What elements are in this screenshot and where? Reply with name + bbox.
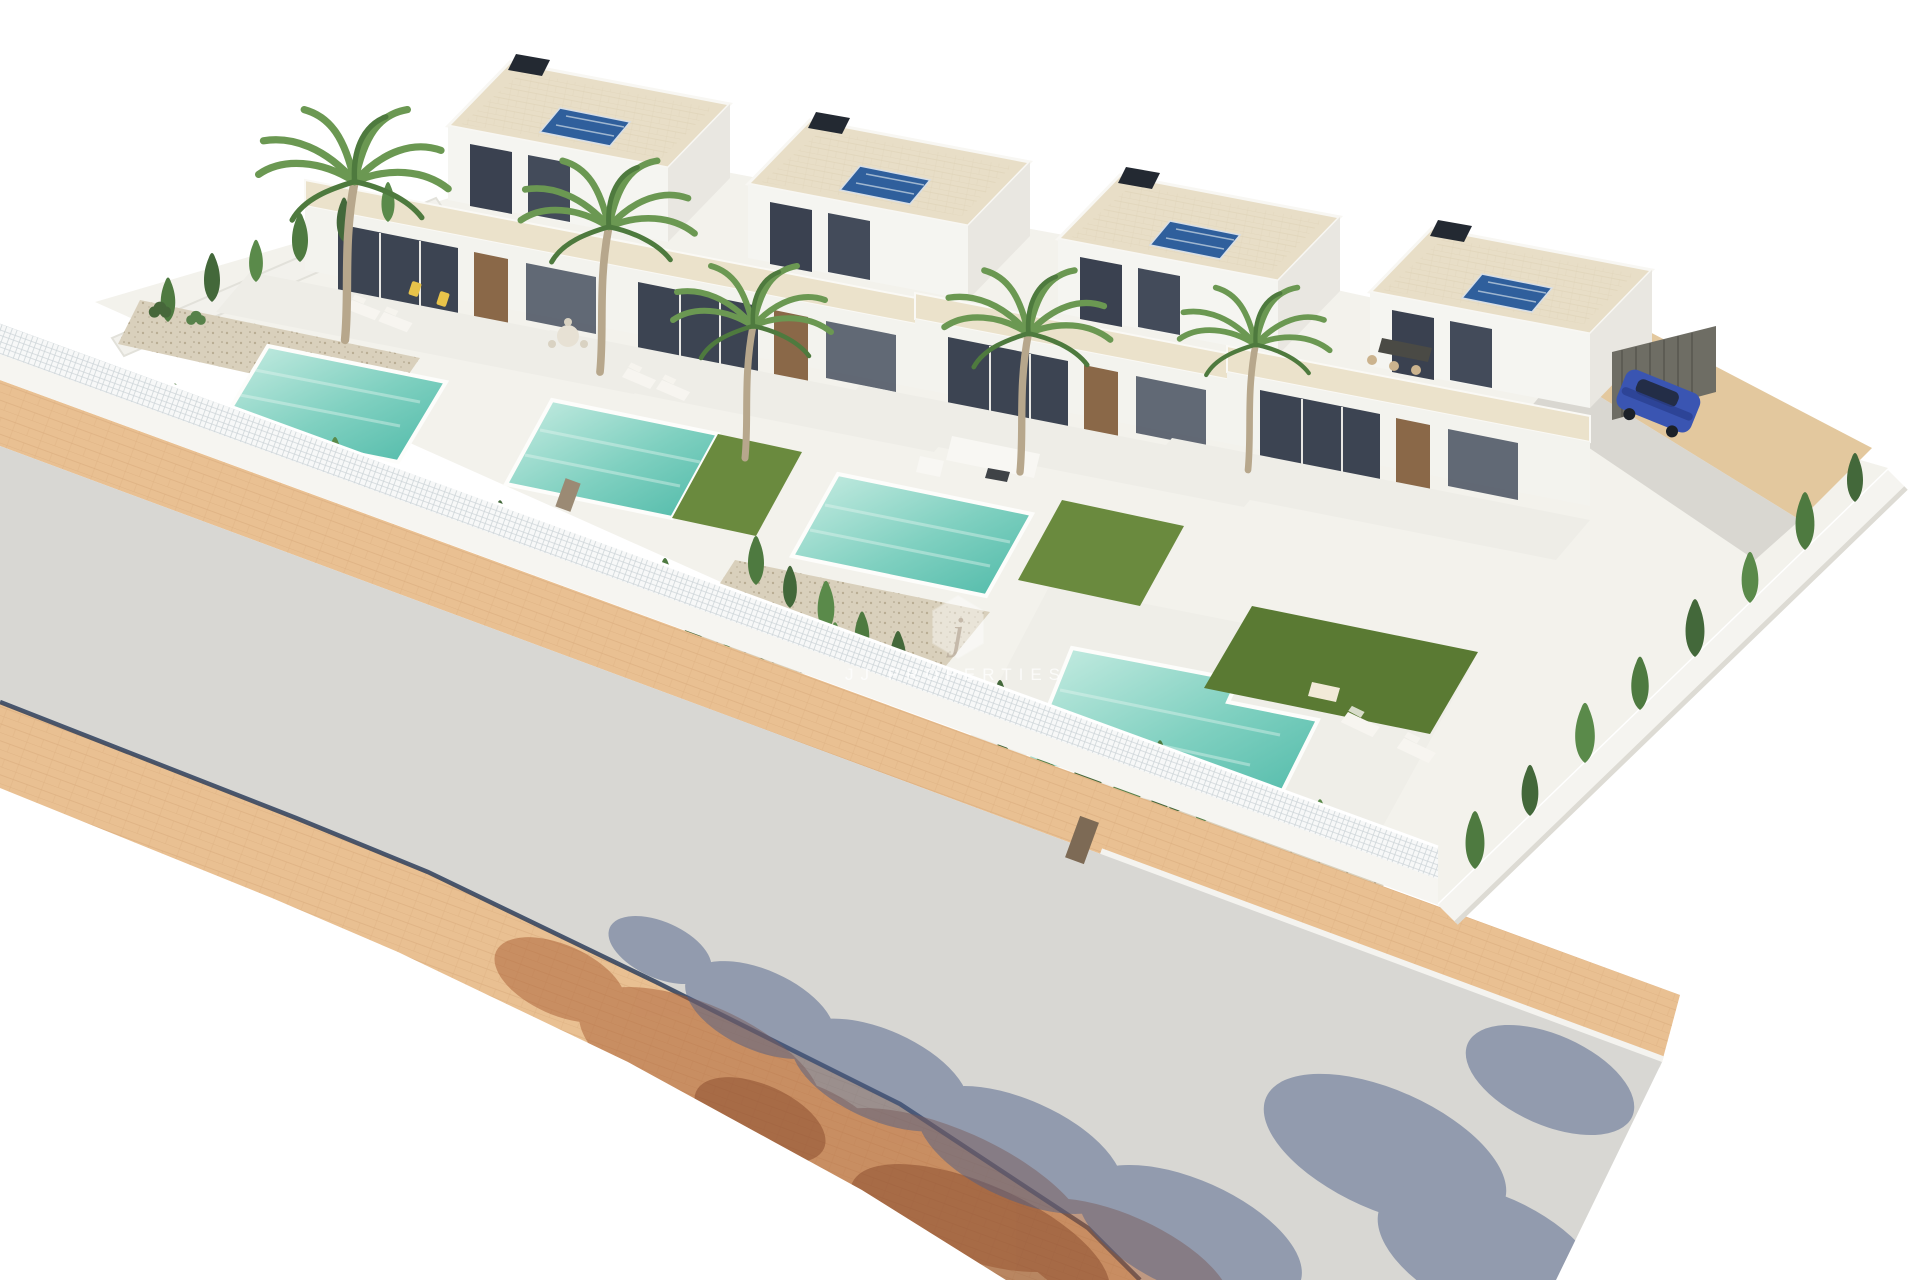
brand-wordmark: JJ PROPERTIES [845, 665, 1067, 684]
render-canvas: j JJ PROPERTIES [0, 0, 1920, 1280]
villa-development-render: j JJ PROPERTIES [0, 0, 1920, 1280]
patio-table [557, 325, 579, 347]
